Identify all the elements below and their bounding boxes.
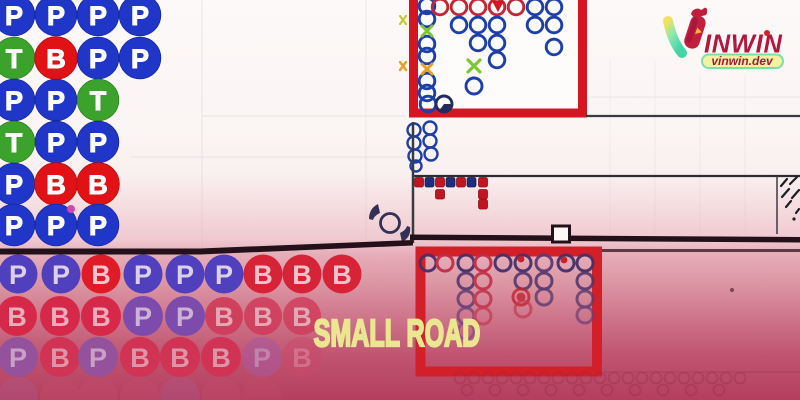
svg-text:B: B: [292, 343, 312, 373]
svg-text:P: P: [89, 44, 107, 74]
svg-text:T: T: [90, 86, 107, 116]
svg-text:P: P: [89, 128, 107, 158]
svg-text:P: P: [253, 343, 271, 373]
svg-text:B: B: [292, 302, 312, 332]
svg-text:P: P: [52, 260, 70, 290]
svg-text:P: P: [5, 170, 23, 200]
svg-text:B: B: [88, 170, 108, 200]
svg-text:P: P: [131, 44, 149, 74]
svg-text:P: P: [47, 128, 65, 158]
svg-text:P: P: [134, 260, 152, 290]
svg-text:T: T: [6, 128, 23, 158]
svg-text:SMALL ROAD: SMALL ROAD: [314, 312, 481, 354]
svg-text:B: B: [332, 260, 352, 290]
svg-text:P: P: [89, 1, 107, 31]
svg-text:P: P: [47, 1, 65, 31]
svg-text:P: P: [176, 260, 194, 290]
svg-text:B: B: [46, 44, 66, 74]
svg-text:B: B: [170, 343, 190, 373]
svg-text:P: P: [47, 211, 65, 241]
svg-text:P: P: [5, 1, 23, 31]
svg-text:B: B: [214, 302, 234, 332]
svg-text:P: P: [47, 86, 65, 116]
svg-text:B: B: [91, 260, 111, 290]
svg-text:B: B: [130, 343, 150, 373]
svg-text:P: P: [89, 343, 107, 373]
svg-text:P: P: [9, 343, 27, 373]
svg-text:B: B: [211, 343, 231, 373]
svg-text:B: B: [46, 170, 66, 200]
svg-text:T: T: [6, 44, 23, 74]
svg-text:P: P: [215, 260, 233, 290]
svg-text:B: B: [50, 302, 70, 332]
svg-text:B: B: [7, 302, 27, 332]
svg-text:P: P: [134, 302, 152, 332]
svg-text:P: P: [5, 86, 23, 116]
svg-text:P: P: [131, 1, 149, 31]
svg-text:P: P: [176, 302, 194, 332]
svg-text:P: P: [5, 211, 23, 241]
svg-text:vinwin.dev: vinwin.dev: [711, 54, 774, 68]
svg-text:P: P: [9, 260, 27, 290]
svg-text:B: B: [292, 260, 312, 290]
svg-text:B: B: [91, 302, 111, 332]
svg-text:P: P: [89, 211, 107, 241]
svg-text:B: B: [253, 302, 273, 332]
svg-text:B: B: [50, 343, 70, 373]
svg-text:B: B: [253, 260, 273, 290]
